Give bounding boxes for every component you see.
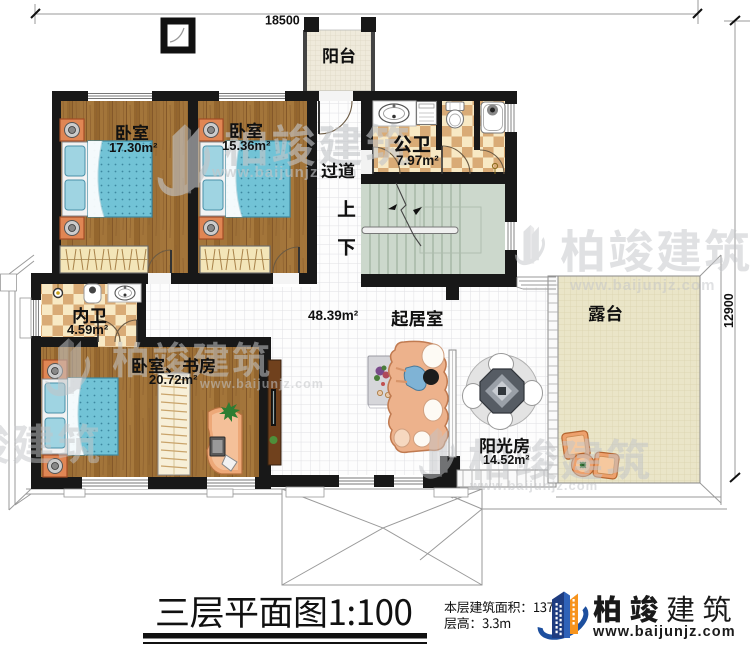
svg-text:4.59m²: 4.59m²	[67, 322, 109, 337]
svg-text:www.baijunjz.com: www.baijunjz.com	[469, 478, 598, 493]
svg-text:www.baijunjz.com: www.baijunjz.com	[199, 377, 324, 391]
svg-text:www.baijunjz.com: www.baijunjz.com	[569, 277, 715, 294]
svg-text:18500: 18500	[265, 14, 300, 28]
svg-text:7.97m²: 7.97m²	[396, 153, 439, 168]
svg-text:20.72m²: 20.72m²	[149, 372, 198, 387]
svg-text:www.baijunjz.com: www.baijunjz.com	[592, 624, 736, 640]
svg-text:12900: 12900	[722, 293, 736, 328]
svg-text:14.52m²: 14.52m²	[483, 453, 530, 467]
svg-text:17.30m²: 17.30m²	[109, 140, 158, 155]
svg-text:15.36m²: 15.36m²	[222, 138, 271, 153]
svg-text:48.39m²: 48.39m²	[308, 308, 359, 323]
